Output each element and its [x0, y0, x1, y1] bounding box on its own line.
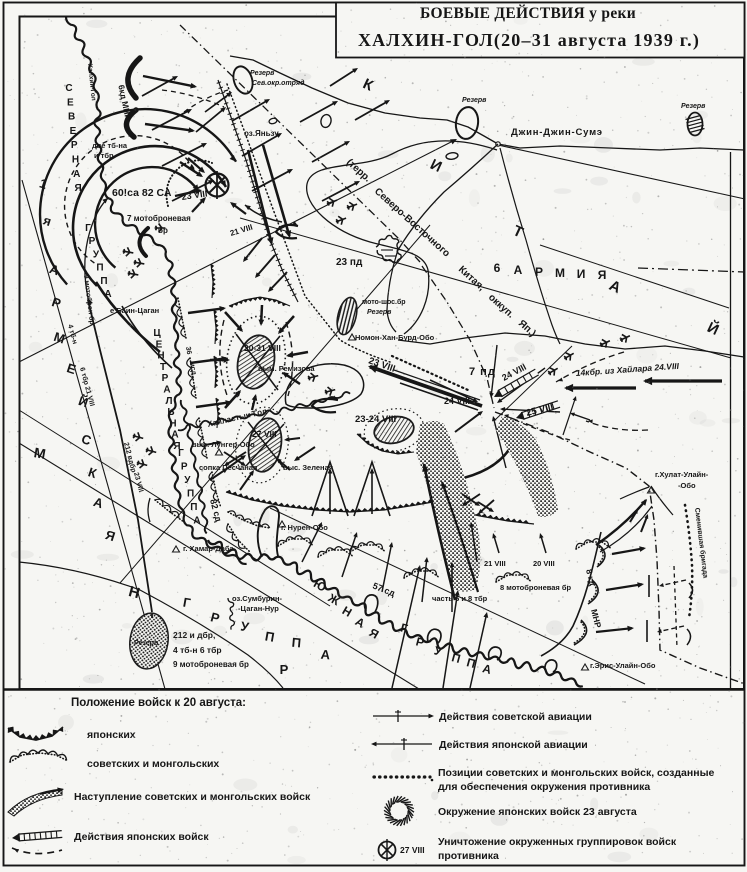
svg-text:Р: Р: [181, 462, 188, 473]
svg-text:Н: Н: [157, 351, 164, 362]
svg-text:ХАЛХИН-ГОЛ(20–31 августа 1939: ХАЛХИН-ГОЛ(20–31 августа 1939 г.): [358, 30, 700, 51]
svg-text:П: П: [291, 635, 302, 651]
svg-text:А: А: [171, 430, 178, 441]
svg-text:Е: Е: [70, 126, 77, 137]
svg-text:Позиции советских и монгольски: Позиции советских и монгольских войск, с…: [438, 767, 715, 779]
svg-text:9 мотоброневая бр: 9 мотоброневая бр: [173, 660, 249, 669]
svg-text:П: П: [190, 502, 197, 513]
svg-text:П: П: [187, 489, 194, 500]
svg-text:У: У: [93, 249, 100, 260]
svg-text:36: 36: [184, 346, 192, 355]
svg-text:24 VIII: 24 VIII: [444, 396, 470, 406]
svg-text:Н: Н: [72, 155, 79, 166]
svg-text:А: А: [73, 169, 80, 180]
svg-text:Е: Е: [67, 97, 74, 108]
svg-text:Действия советской авиации: Действия советской авиации: [439, 711, 592, 723]
svg-text:Р: Р: [89, 236, 96, 247]
svg-text:Ц: Ц: [153, 328, 161, 339]
svg-text:Ь: Ь: [167, 407, 174, 418]
svg-text:А: А: [514, 263, 523, 277]
svg-text:27 VIII: 27 VIII: [252, 429, 277, 439]
svg-text:оз.Сумбурин-: оз.Сумбурин-: [232, 594, 283, 603]
svg-text:М: М: [555, 266, 565, 280]
svg-text:7 пд: 7 пд: [469, 366, 496, 378]
svg-text:Окружение японских войск 23 ав: Окружение японских войск 23 августа: [438, 806, 637, 818]
svg-text:г. Хамар-Даба: г. Хамар-Даба: [183, 544, 235, 553]
svg-text:Резерв: Резерв: [462, 97, 487, 104]
svg-text:А: А: [163, 385, 170, 396]
svg-text:27 VIII: 27 VIII: [400, 845, 425, 855]
svg-text:бр: бр: [158, 226, 168, 235]
svg-text:21 VIII: 21 VIII: [484, 559, 506, 568]
svg-text:Г: Г: [85, 223, 91, 234]
svg-text:часть 6 и 8 тбр: часть 6 и 8 тбр: [432, 594, 488, 603]
svg-text:В: В: [68, 112, 75, 123]
svg-text:Я: Я: [75, 183, 82, 194]
svg-text:И: И: [577, 267, 586, 281]
svg-text:У: У: [184, 475, 191, 486]
svg-text:Резерв: Резерв: [681, 103, 706, 110]
svg-text:Резерв: Резерв: [134, 640, 159, 647]
svg-text:20-31 VIII: 20-31 VIII: [244, 343, 281, 353]
svg-text:20 VIII: 20 VIII: [533, 559, 555, 568]
svg-text:А: А: [193, 516, 200, 527]
svg-text:вым. Ремизова: вым. Ремизова: [258, 364, 315, 373]
svg-text:Е: Е: [156, 339, 163, 350]
svg-text:-Обо: -Обо: [678, 481, 696, 490]
svg-text:Сев.окр.отряд: Сев.окр.отряд: [252, 79, 305, 87]
svg-text:г.Хулат-Улайн-: г.Хулат-Улайн-: [655, 470, 709, 479]
svg-text:С: С: [65, 83, 72, 94]
svg-text:БОЕВЫЕ ДЕЙСТВИЯ у реки: БОЕВЫЕ ДЕЙСТВИЯ у реки: [420, 5, 636, 22]
svg-text:для обеспечения окружения прот: для обеспечения окружения противника: [438, 781, 650, 793]
svg-text:советских и монгольских: советских и монгольских: [87, 758, 219, 770]
svg-text:Резерв: Резерв: [367, 309, 392, 316]
svg-text:Р: Р: [280, 662, 289, 677]
svg-text:4 тб-н 6 тбр: 4 тб-н 6 тбр: [173, 645, 222, 655]
svg-text:Наступление советских и монгол: Наступление советских и монгольских войс…: [74, 791, 311, 803]
svg-text:противника: противника: [438, 850, 499, 862]
svg-text:23 пд: 23 пд: [336, 257, 363, 268]
svg-text:-Цаган-Нур: -Цаган-Нур: [238, 604, 279, 613]
svg-text:Л: Л: [165, 396, 172, 407]
svg-text:Р: Р: [162, 373, 169, 384]
svg-text:23-24 VIII: 23-24 VIII: [355, 414, 396, 425]
svg-text:г.Эрис-Улайн-Обо: г.Эрис-Улайн-Обо: [590, 661, 656, 670]
svg-text:мото-шос.бр: мото-шос.бр: [362, 298, 406, 306]
svg-text:60!са 82 СА: 60!са 82 СА: [112, 187, 172, 199]
svg-text:Номон-Хан-Бурд-Обо: Номон-Хан-Бурд-Обо: [355, 333, 435, 342]
svg-text:сопка Песчаная: сопка Песчаная: [199, 463, 257, 472]
svg-text:Джин-Джин-Сумэ: Джин-Джин-Сумэ: [511, 127, 603, 138]
svg-text:6: 6: [494, 261, 501, 275]
svg-text:Р: Р: [71, 140, 78, 151]
svg-text:П: П: [96, 263, 103, 274]
svg-text:оз.Яньзу: оз.Яньзу: [244, 129, 279, 138]
svg-text:Я: Я: [598, 268, 607, 282]
svg-text:7 мотоброневая: 7 мотоброневая: [127, 214, 191, 223]
svg-text:Положение войск к 20 августа:: Положение войск к 20 августа:: [71, 697, 246, 709]
svg-text:е Баин-Цаган: е Баин-Цаган: [110, 306, 159, 315]
svg-text:Действия японских войск: Действия японских войск: [74, 831, 209, 843]
svg-text:Н: Н: [169, 418, 176, 429]
svg-text:японских: японских: [87, 729, 136, 741]
svg-text:8 мотоброневая бр: 8 мотоброневая бр: [500, 583, 572, 592]
svg-text:выс. Зеленая: выс. Зеленая: [283, 463, 333, 472]
svg-text:Т: Т: [160, 362, 166, 373]
svg-text:Г: Г: [178, 448, 184, 459]
svg-text:две тб-на: две тб-на: [92, 141, 128, 150]
svg-text:А: А: [104, 289, 111, 300]
svg-text:Резерв: Резерв: [250, 70, 275, 77]
svg-text:выс. Лунгер-Обо: выс. Лунгер-Обо: [192, 440, 255, 449]
